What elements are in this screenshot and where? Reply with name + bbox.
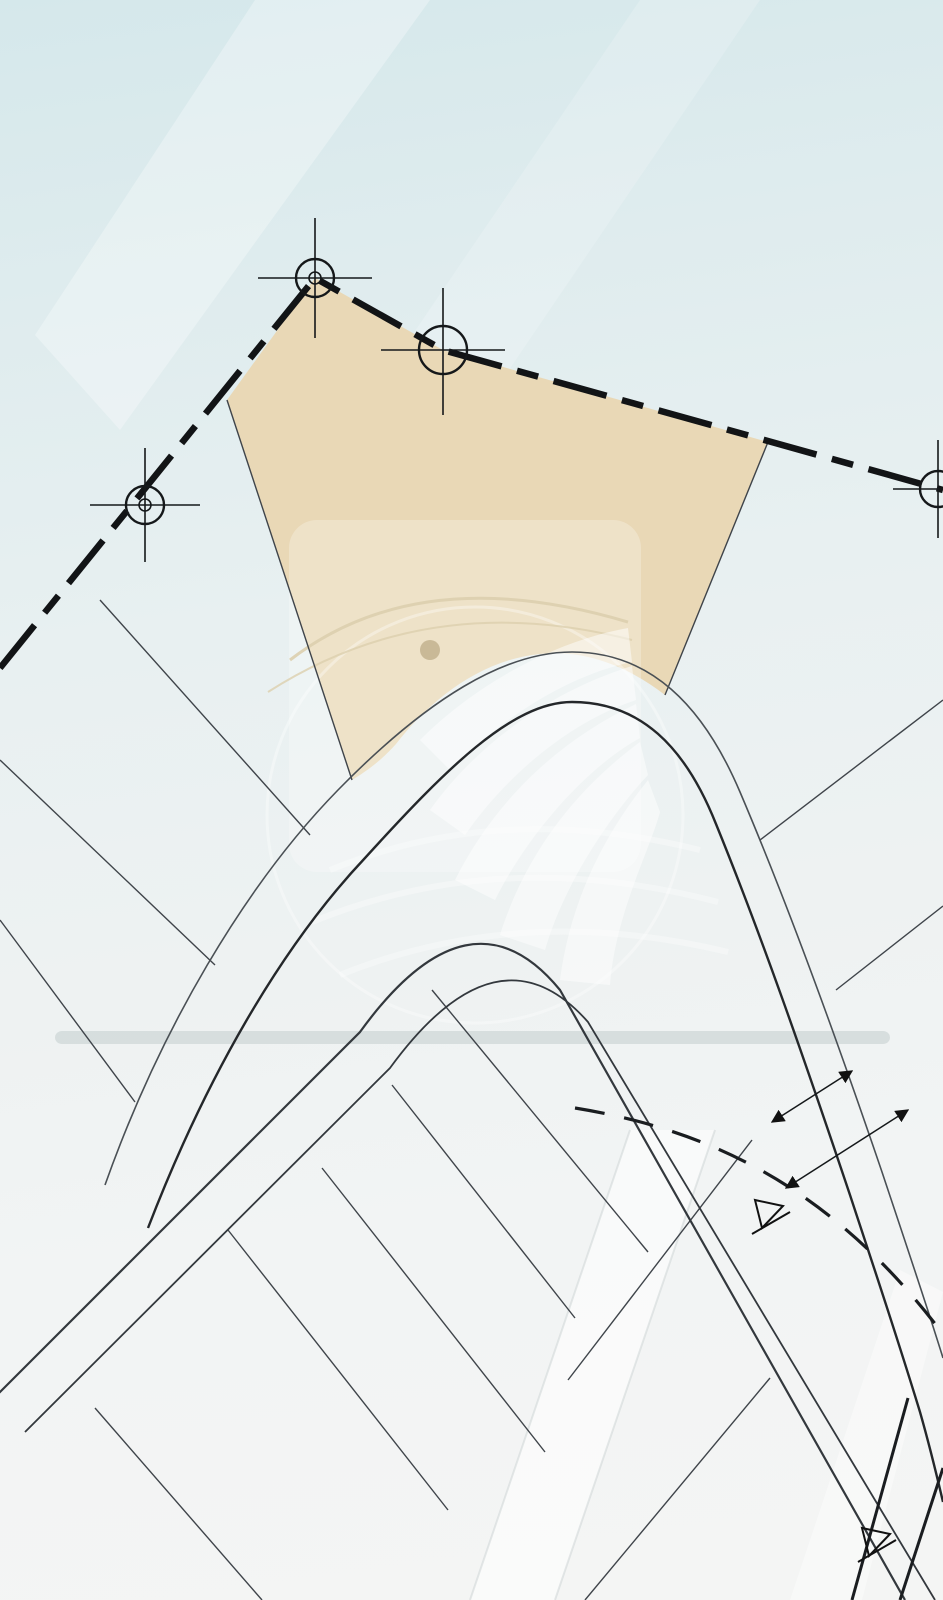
- section-a-marker-icon: [752, 1200, 790, 1234]
- watermark-underline: [55, 1031, 890, 1044]
- crosshair-icon: [893, 440, 943, 538]
- dimension-arrows: [772, 1071, 908, 1188]
- map-linework: [0, 0, 943, 1600]
- watermark-logo: [55, 520, 890, 1044]
- globe-dot-icon: [420, 640, 440, 660]
- corner-road-line2: [900, 1468, 943, 1600]
- plat-map: [0, 0, 943, 1600]
- crosshair-icon: [90, 448, 200, 562]
- elbow-road-inner-edge: [25, 980, 935, 1600]
